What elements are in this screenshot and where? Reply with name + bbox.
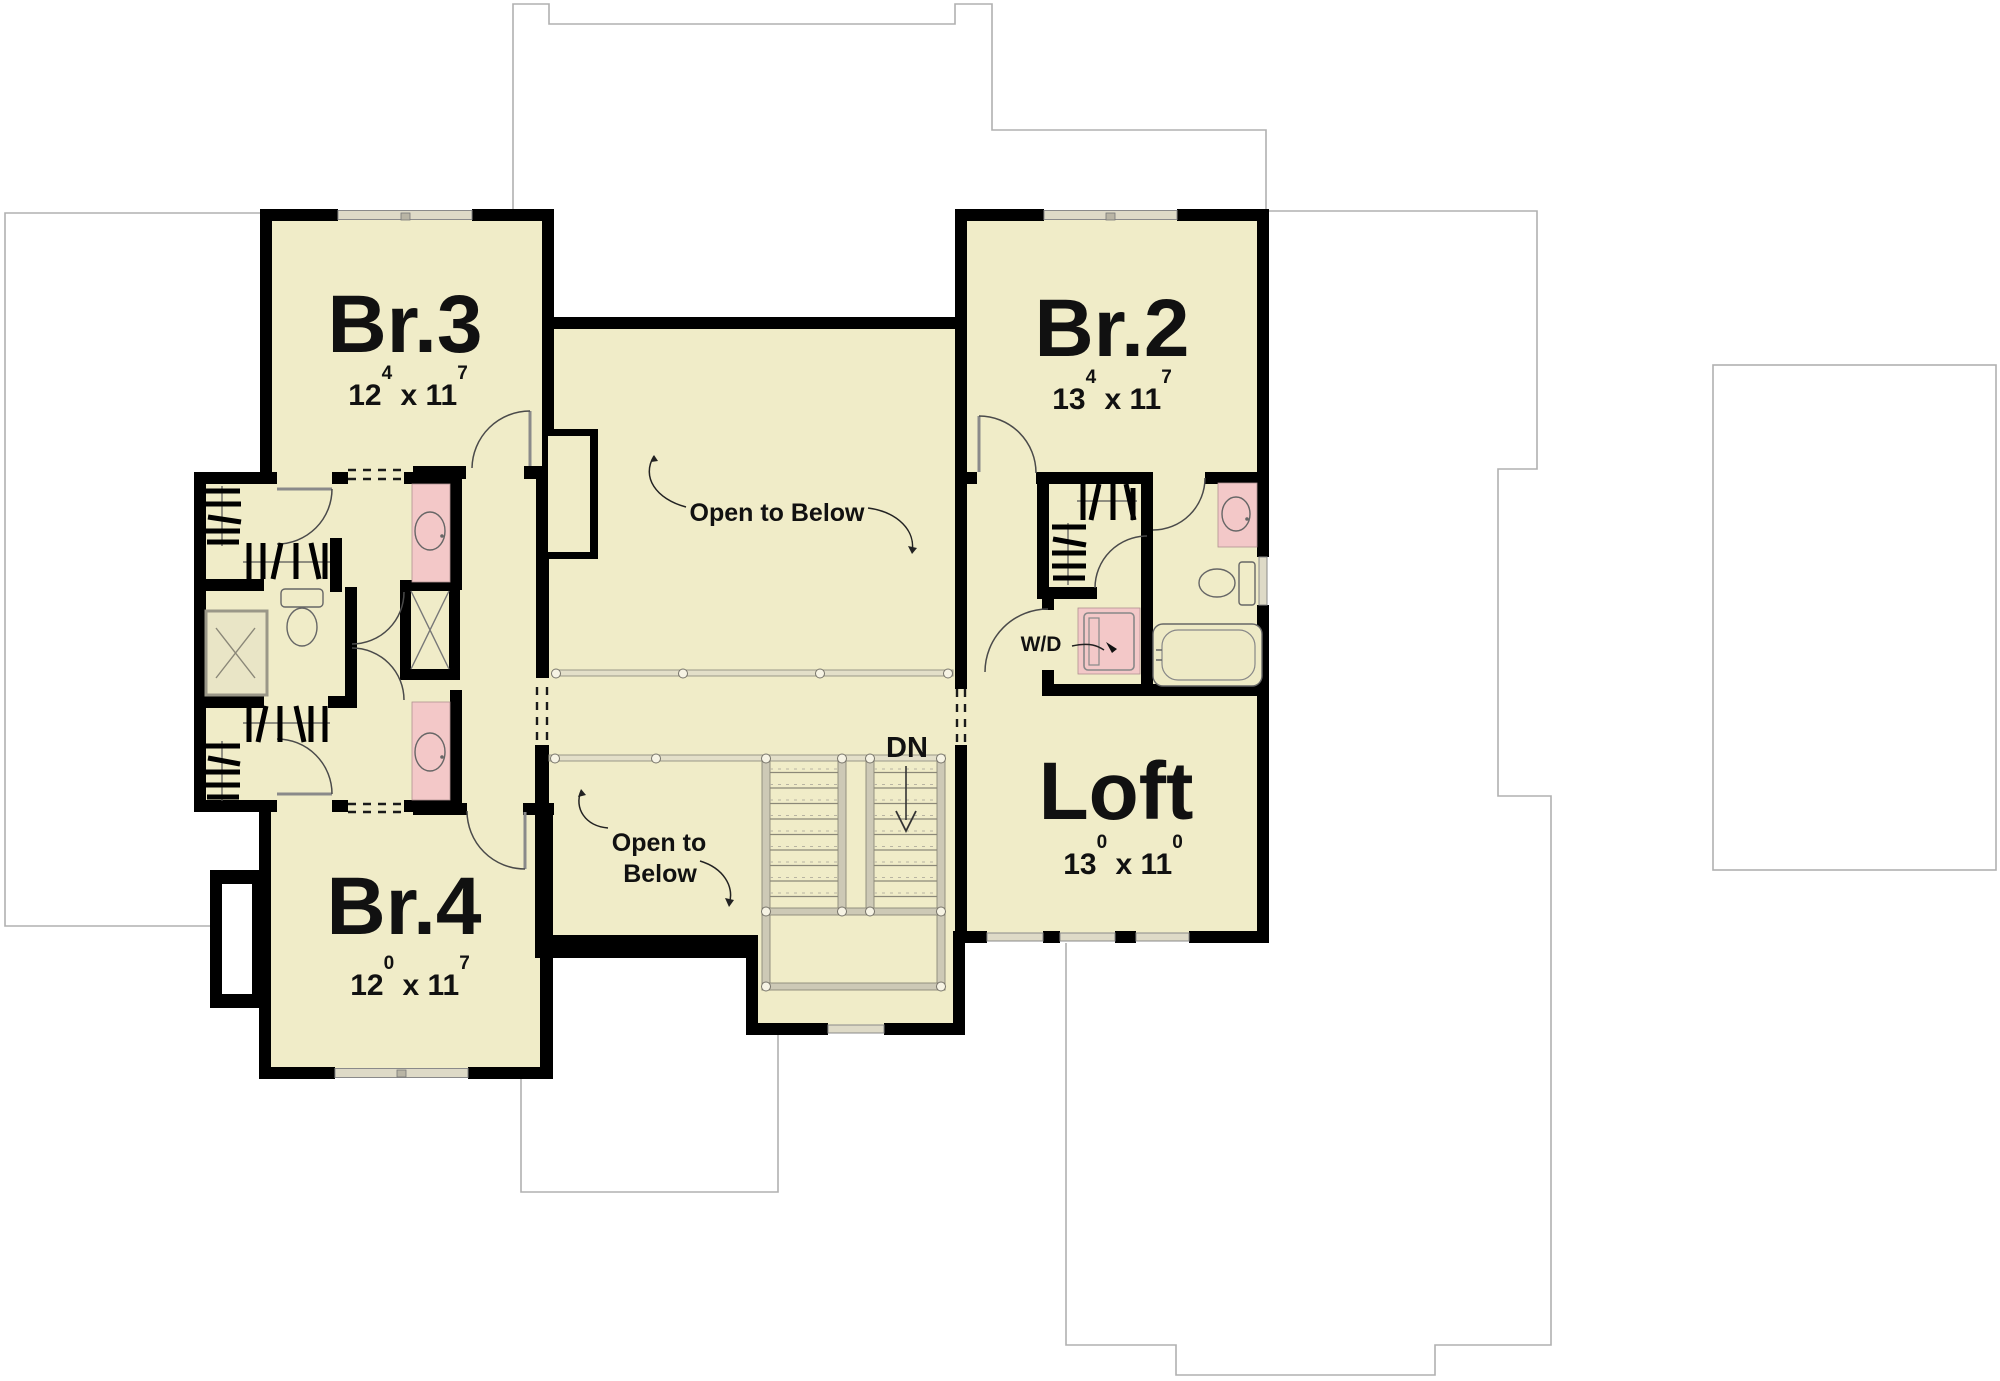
svg-text:Br.3: Br.3 bbox=[328, 279, 483, 370]
svg-text:Loft: Loft bbox=[1039, 746, 1194, 837]
svg-text:W/D: W/D bbox=[1021, 633, 1062, 656]
svg-text:Below: Below bbox=[623, 860, 697, 888]
svg-text:Br.4: Br.4 bbox=[327, 861, 482, 952]
svg-text:DN: DN bbox=[886, 732, 928, 764]
svg-text:Br.2: Br.2 bbox=[1035, 283, 1190, 374]
svg-text:Open to: Open to bbox=[612, 829, 706, 857]
svg-text:Open to Below: Open to Below bbox=[690, 499, 866, 527]
